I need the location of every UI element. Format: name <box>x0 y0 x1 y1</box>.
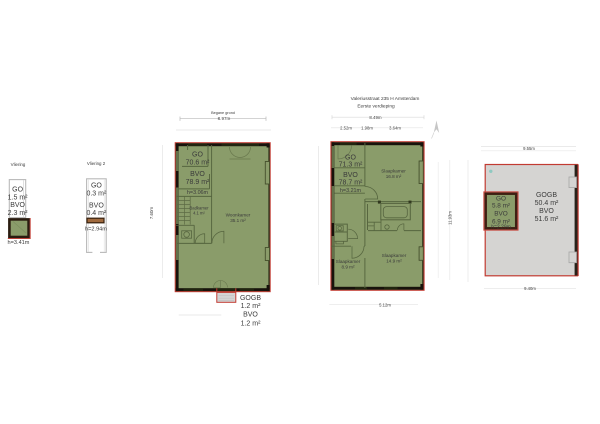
svg-text:GO: GO <box>496 195 506 202</box>
svg-text:7.60m: 7.60m <box>149 207 154 220</box>
svg-text:Slaapkamer: Slaapkamer <box>336 259 361 264</box>
svg-text:2.3 m²: 2.3 m² <box>8 210 29 217</box>
svg-text:5.12m: 5.12m <box>379 302 391 307</box>
svg-text:Vliering 2: Vliering 2 <box>87 161 106 166</box>
svg-text:14.9 m²: 14.9 m² <box>386 259 402 264</box>
svg-text:GO: GO <box>345 154 356 161</box>
svg-text:h=3.06m: h=3.06m <box>187 190 209 196</box>
svg-text:5.8 m²: 5.8 m² <box>492 203 510 210</box>
svg-text:GO: GO <box>91 182 102 189</box>
svg-text:Eerste verdieping: Eerste verdieping <box>357 104 395 110</box>
svg-text:11.93m: 11.93m <box>448 211 453 225</box>
svg-text:8.49m: 8.49m <box>369 115 382 120</box>
svg-text:GO: GO <box>192 152 203 159</box>
svg-text:9.40m: 9.40m <box>524 286 536 291</box>
svg-text:8.97m: 8.97m <box>218 116 231 121</box>
svg-text:BVO: BVO <box>89 202 104 209</box>
svg-text:0.4 m²: 0.4 m² <box>86 210 107 217</box>
svg-text:71.3 m²: 71.3 m² <box>339 162 363 169</box>
svg-text:51.6 m²: 51.6 m² <box>535 216 559 223</box>
svg-text:1.98m: 1.98m <box>361 126 373 131</box>
svg-text:BVO: BVO <box>539 208 554 215</box>
svg-text:78.7 m²: 78.7 m² <box>339 180 363 187</box>
svg-text:1.5 m²: 1.5 m² <box>8 195 29 202</box>
svg-text:70.6 m²: 70.6 m² <box>186 160 210 167</box>
svg-text:35.1 m²: 35.1 m² <box>230 218 246 223</box>
svg-text:Slaapkamer: Slaapkamer <box>382 253 407 258</box>
svg-text:Begane grond: Begane grond <box>211 111 235 115</box>
svg-text:50.4 m²: 50.4 m² <box>535 200 559 207</box>
svg-text:8.9 m²: 8.9 m² <box>341 265 354 270</box>
svg-text:GOGB: GOGB <box>240 295 261 302</box>
svg-text:GOGB: GOGB <box>536 192 557 199</box>
svg-text:GO: GO <box>12 187 23 194</box>
svg-text:1.2 m²: 1.2 m² <box>241 320 262 327</box>
svg-text:h=3.21m: h=3.21m <box>340 188 362 194</box>
svg-text:BVO: BVO <box>343 172 358 179</box>
svg-text:h=2.29m: h=2.29m <box>491 225 511 231</box>
svg-text:BVO: BVO <box>494 211 508 218</box>
svg-text:h=3.41m: h=3.41m <box>8 240 30 246</box>
svg-text:BVO: BVO <box>243 312 258 319</box>
svg-text:BVO: BVO <box>10 202 25 209</box>
svg-text:78.9 m²: 78.9 m² <box>186 179 210 186</box>
svg-text:1.2 m²: 1.2 m² <box>241 303 262 310</box>
svg-text:BVO: BVO <box>190 171 205 178</box>
svg-text:Woonkamer: Woonkamer <box>226 213 251 218</box>
svg-text:9.55m: 9.55m <box>523 146 535 151</box>
svg-text:Slaapkamer: Slaapkamer <box>381 169 406 174</box>
svg-text:16.8 m²: 16.8 m² <box>386 174 402 179</box>
svg-text:2.52m: 2.52m <box>340 126 352 131</box>
svg-text:Valeriusstraat 235 H Amsterdam: Valeriusstraat 235 H Amsterdam <box>351 96 420 102</box>
svg-text:Vliering: Vliering <box>11 162 26 167</box>
svg-text:h=2.94m: h=2.94m <box>85 227 107 233</box>
svg-text:0.3 m²: 0.3 m² <box>86 190 107 197</box>
svg-text:4.1 m²: 4.1 m² <box>193 211 205 216</box>
svg-text:3.64m: 3.64m <box>389 126 401 131</box>
